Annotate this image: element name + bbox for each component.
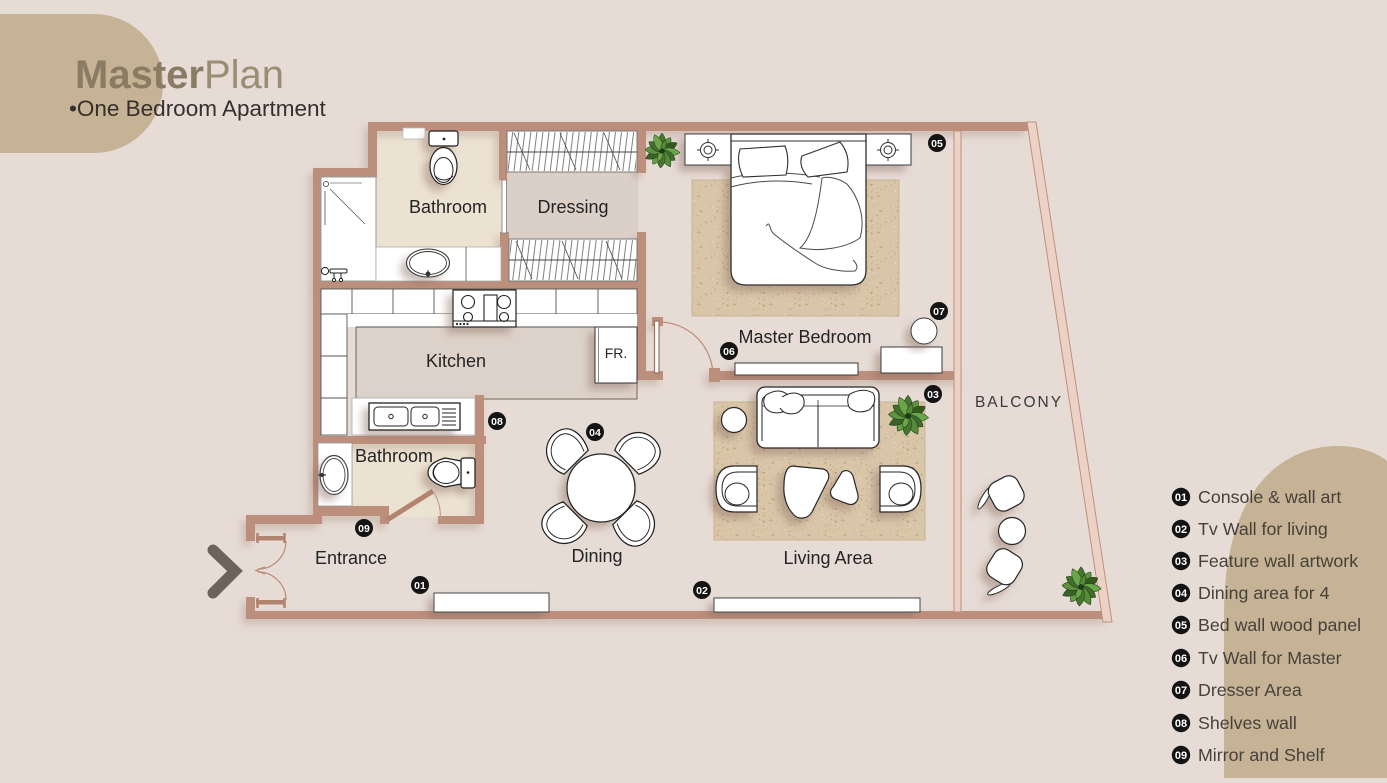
svg-text:Dresser Area: Dresser Area — [1198, 680, 1302, 700]
svg-text:BALCONY: BALCONY — [975, 394, 1063, 411]
svg-text:04: 04 — [1175, 588, 1188, 600]
svg-text:Console & wall art: Console & wall art — [1198, 487, 1341, 507]
svg-text:Bathroom: Bathroom — [355, 446, 433, 466]
svg-text:06: 06 — [1175, 653, 1187, 665]
svg-text:03: 03 — [927, 389, 939, 401]
svg-text:Dressing: Dressing — [537, 197, 608, 217]
svg-text:Shelves wall: Shelves wall — [1198, 713, 1297, 733]
svg-text:Bathroom: Bathroom — [409, 197, 487, 217]
svg-text:08: 08 — [1175, 718, 1187, 730]
svg-text:06: 06 — [723, 346, 735, 358]
svg-text:Tv Wall for living: Tv Wall for living — [1198, 519, 1328, 539]
svg-text:07: 07 — [933, 306, 945, 318]
svg-text:02: 02 — [696, 585, 708, 597]
svg-text:Entrance: Entrance — [315, 548, 387, 568]
svg-text:•One Bedroom Apartment: •One Bedroom Apartment — [69, 96, 327, 121]
svg-text:09: 09 — [1175, 750, 1187, 762]
svg-text:MasterPlan: MasterPlan — [75, 53, 284, 97]
svg-text:09: 09 — [358, 523, 370, 535]
svg-text:03: 03 — [1175, 556, 1187, 568]
svg-text:Dining area for 4: Dining area for 4 — [1198, 583, 1330, 603]
svg-text:07: 07 — [1175, 685, 1187, 697]
svg-text:Kitchen: Kitchen — [426, 351, 486, 371]
svg-text:05: 05 — [1175, 620, 1187, 632]
svg-text:Master Bedroom: Master Bedroom — [738, 327, 871, 347]
svg-text:05: 05 — [931, 138, 943, 150]
svg-text:Feature wall artwork: Feature wall artwork — [1198, 551, 1358, 571]
svg-text:Tv Wall for Master: Tv Wall for Master — [1198, 648, 1342, 668]
svg-text:Dining: Dining — [571, 546, 622, 566]
svg-text:08: 08 — [491, 416, 503, 428]
svg-text:Mirror and Shelf: Mirror and Shelf — [1198, 745, 1325, 765]
svg-text:02: 02 — [1175, 524, 1187, 536]
svg-text:04: 04 — [589, 427, 601, 439]
svg-text:Living Area: Living Area — [783, 548, 873, 568]
svg-text:01: 01 — [414, 580, 426, 592]
svg-text:01: 01 — [1175, 492, 1187, 504]
svg-text:Bed wall wood panel: Bed wall wood panel — [1198, 615, 1361, 635]
svg-text:FR.: FR. — [605, 345, 628, 361]
